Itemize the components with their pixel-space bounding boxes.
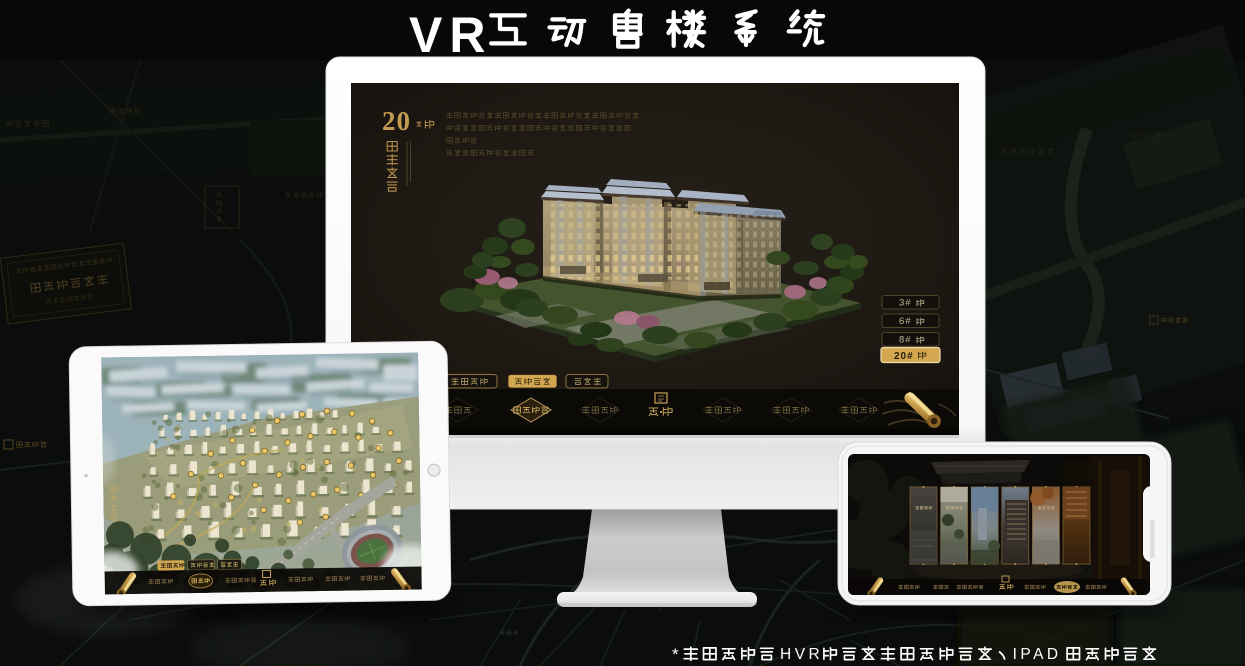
svg-text:3#: 3# xyxy=(899,298,912,309)
svg-text:8#: 8# xyxy=(899,335,912,346)
svg-text:6#: 6# xyxy=(899,316,912,327)
svg-text:IPAD: IPAD xyxy=(1013,646,1062,663)
svg-text:20: 20 xyxy=(382,106,411,136)
svg-text:20#: 20# xyxy=(894,351,914,362)
svg-text:VR: VR xyxy=(409,7,492,63)
svg-text:*: * xyxy=(672,645,679,664)
svg-text:HVR: HVR xyxy=(780,646,823,663)
